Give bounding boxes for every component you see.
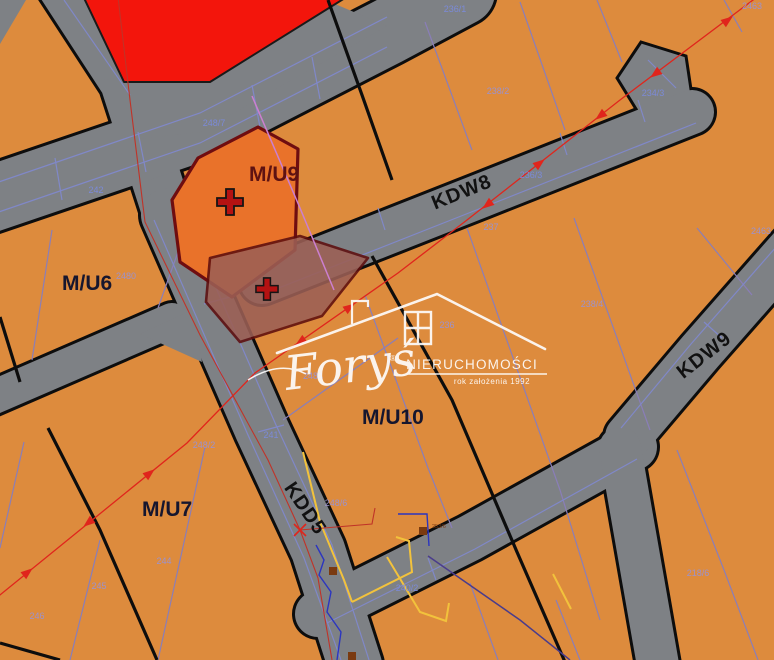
zone-label-mu10: M/U10 xyxy=(362,406,424,429)
parcel-number: 2480 xyxy=(116,271,136,281)
parcel-number: 236/3 xyxy=(520,170,543,180)
parcel-number: 234/3 xyxy=(642,88,665,98)
watermark-registered-icon: ® xyxy=(390,354,396,363)
zone-label-mu6: M/U6 xyxy=(62,272,112,295)
zoning-map: 253/6 236/12463248/7242238/2234/3236/323… xyxy=(0,0,774,660)
parcel-number: 2463 xyxy=(751,226,771,236)
parcel-number: 248/7 xyxy=(203,118,226,128)
parcel-number: 242 xyxy=(88,185,103,195)
utility-marker-icon xyxy=(348,652,356,660)
utility-marker-icon xyxy=(419,527,427,535)
watermark-subtitle: rok założenia 1992 xyxy=(454,377,530,386)
parcel-number: 248/2 xyxy=(193,440,216,450)
parcel-number: 245 xyxy=(91,581,106,591)
parcel-number: 238/2 xyxy=(487,86,510,96)
map-canvas: 253/6 236/12463248/7242238/2234/3236/323… xyxy=(0,0,774,660)
zone-label-mu7: M/U7 xyxy=(142,498,192,521)
parcel-number: 248/6 xyxy=(325,498,348,508)
utility-label: 253/6 xyxy=(432,524,446,530)
watermark-title: NIERUCHOMOŚCI xyxy=(406,357,538,372)
parcel-number: 241 xyxy=(263,430,278,440)
parcel-number: 236/1 xyxy=(444,4,467,14)
parcel-number: 2463 xyxy=(742,1,762,11)
zone-label-mu9: M/U9 xyxy=(249,163,299,186)
parcel-number: 237 xyxy=(483,222,498,232)
parcel-number: 218/6 xyxy=(687,568,710,578)
utility-marker-icon xyxy=(329,567,337,575)
parcel-number: 246 xyxy=(29,611,44,621)
parcel-number: 240/2 xyxy=(396,583,419,593)
parcel-number: 236 xyxy=(439,320,454,330)
parcel-number: 244 xyxy=(156,556,171,566)
parcel-number: 238/4 xyxy=(581,299,604,309)
